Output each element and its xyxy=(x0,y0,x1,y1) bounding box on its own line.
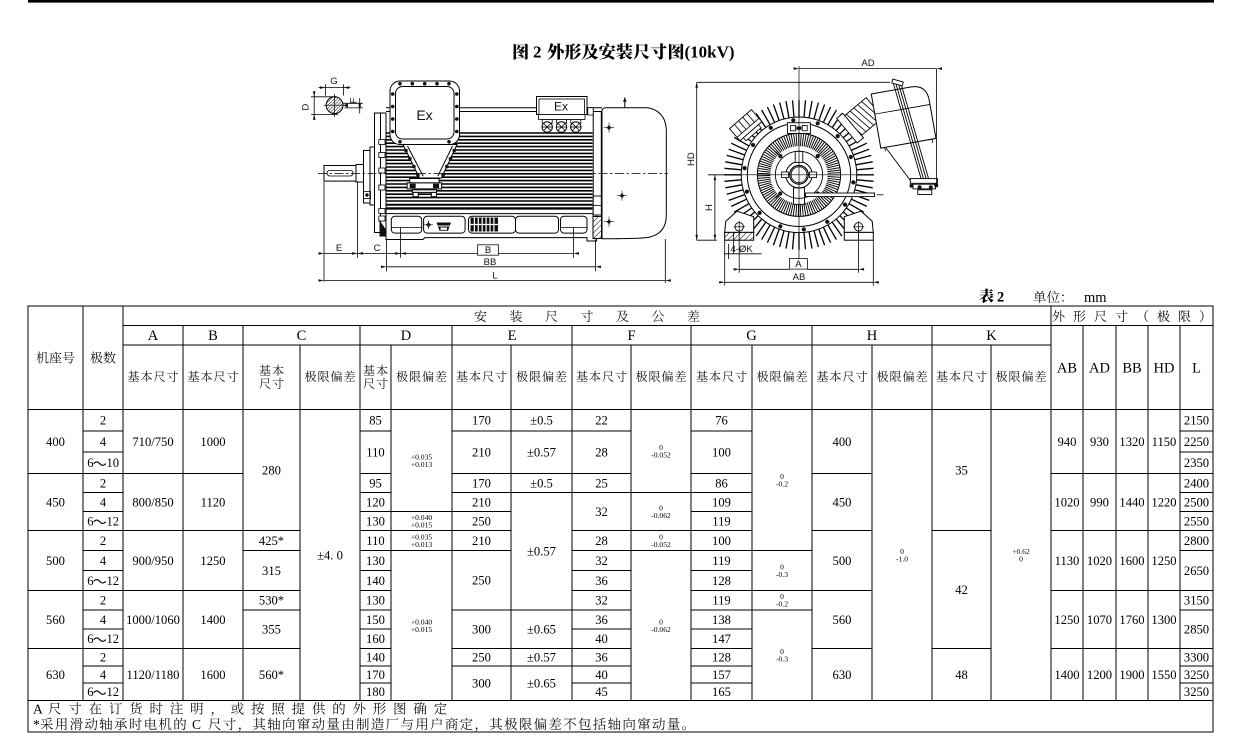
svg-text:AB: AB xyxy=(793,272,806,283)
svg-text:22: 22 xyxy=(595,414,608,428)
svg-text:1200: 1200 xyxy=(1087,668,1112,682)
svg-text:1220: 1220 xyxy=(1151,495,1176,509)
svg-text:990: 990 xyxy=(1090,495,1109,509)
svg-text:BB: BB xyxy=(1122,361,1141,377)
svg-text:128: 128 xyxy=(712,651,731,665)
svg-text:1120: 1120 xyxy=(201,495,226,509)
svg-text:Ex: Ex xyxy=(416,107,432,123)
svg-text:C: C xyxy=(297,328,307,344)
svg-text:76: 76 xyxy=(715,414,728,428)
svg-text:1000/1060: 1000/1060 xyxy=(126,613,180,627)
svg-text:12: 12 xyxy=(107,685,120,699)
svg-text:F: F xyxy=(348,98,359,104)
svg-text:2150: 2150 xyxy=(1184,414,1209,428)
svg-text:AD: AD xyxy=(861,58,874,69)
svg-text:147: 147 xyxy=(712,632,731,646)
svg-text:36: 36 xyxy=(595,613,608,627)
svg-text:±0.57: ±0.57 xyxy=(527,446,556,460)
svg-text:560: 560 xyxy=(833,613,852,627)
svg-text:170: 170 xyxy=(472,476,491,490)
svg-text:180: 180 xyxy=(366,685,385,699)
svg-text:32: 32 xyxy=(595,594,608,608)
svg-text:3250: 3250 xyxy=(1184,685,1209,699)
svg-text:1020: 1020 xyxy=(1087,554,1112,568)
svg-text:2650: 2650 xyxy=(1184,564,1209,578)
svg-text:1070: 1070 xyxy=(1087,613,1112,627)
svg-text:42: 42 xyxy=(955,583,968,597)
svg-text:*: * xyxy=(33,717,40,732)
svg-text:138: 138 xyxy=(712,613,731,627)
svg-text:140: 140 xyxy=(366,574,385,588)
svg-text:AB: AB xyxy=(1057,361,1077,377)
svg-text:210: 210 xyxy=(472,495,491,509)
svg-text:1400: 1400 xyxy=(200,613,225,627)
svg-text:560: 560 xyxy=(46,613,65,627)
svg-text:119: 119 xyxy=(712,594,730,608)
svg-text:36: 36 xyxy=(595,651,608,665)
svg-text:1020: 1020 xyxy=(1054,495,1079,509)
svg-text:2350: 2350 xyxy=(1184,456,1209,470)
svg-text:2: 2 xyxy=(100,476,106,490)
svg-text:A: A xyxy=(33,702,43,717)
svg-text:530*: 530* xyxy=(259,594,284,608)
svg-text:280: 280 xyxy=(262,463,281,477)
svg-text:1250: 1250 xyxy=(200,554,225,568)
svg-text:2800: 2800 xyxy=(1184,534,1209,548)
svg-text:-0.3: -0.3 xyxy=(776,655,788,664)
svg-text:2: 2 xyxy=(997,290,1004,306)
svg-text:2400: 2400 xyxy=(1184,476,1209,490)
svg-text:1760: 1760 xyxy=(1119,613,1144,627)
svg-text:900/950: 900/950 xyxy=(132,554,173,568)
svg-text:Ex: Ex xyxy=(554,100,568,114)
svg-text:(10kV): (10kV) xyxy=(685,43,735,62)
svg-text:±0.57: ±0.57 xyxy=(527,545,556,559)
svg-text:86: 86 xyxy=(715,476,728,490)
svg-text:1000: 1000 xyxy=(200,435,225,449)
svg-text:H: H xyxy=(867,328,878,344)
svg-text:450: 450 xyxy=(833,495,852,509)
svg-text:-0.062: -0.062 xyxy=(651,511,671,520)
svg-text:F: F xyxy=(627,328,635,344)
svg-text:E: E xyxy=(336,243,342,254)
svg-text:±4. 0: ±4. 0 xyxy=(317,548,343,562)
svg-text:10: 10 xyxy=(107,456,120,470)
svg-text:1250: 1250 xyxy=(1054,613,1079,627)
svg-text:1130: 1130 xyxy=(1055,554,1080,568)
svg-text:4: 4 xyxy=(100,495,107,509)
svg-text:-0.052: -0.052 xyxy=(651,540,671,549)
svg-text:35: 35 xyxy=(955,463,968,477)
svg-text:1320: 1320 xyxy=(1119,435,1144,449)
svg-text:+0.013: +0.013 xyxy=(411,540,433,549)
svg-text:4: 4 xyxy=(100,554,107,568)
svg-text:6: 6 xyxy=(87,514,93,528)
svg-text:28: 28 xyxy=(595,446,608,460)
svg-text:1600: 1600 xyxy=(200,668,225,682)
svg-text:-1.0: -1.0 xyxy=(896,554,908,563)
svg-text:28: 28 xyxy=(595,534,608,548)
svg-text:HD: HD xyxy=(1154,361,1175,377)
svg-text:100: 100 xyxy=(712,534,731,548)
svg-text:2250: 2250 xyxy=(1184,435,1209,449)
svg-text:425*: 425* xyxy=(259,534,284,548)
svg-text:+0.015: +0.015 xyxy=(411,520,433,529)
svg-text:140: 140 xyxy=(366,651,385,665)
svg-text:6: 6 xyxy=(87,456,93,470)
svg-text:3150: 3150 xyxy=(1184,594,1209,608)
svg-text:250: 250 xyxy=(472,574,491,588)
svg-text:119: 119 xyxy=(712,514,730,528)
svg-text:2: 2 xyxy=(100,414,106,428)
svg-text:0: 0 xyxy=(1019,554,1023,563)
svg-text:250: 250 xyxy=(472,651,491,665)
svg-text:HD: HD xyxy=(686,152,697,166)
svg-text:1600: 1600 xyxy=(1119,554,1144,568)
svg-text:1550: 1550 xyxy=(1151,668,1176,682)
svg-text:-0.052: -0.052 xyxy=(651,450,671,459)
svg-text:560*: 560* xyxy=(259,668,284,682)
svg-text:1440: 1440 xyxy=(1119,495,1144,509)
svg-text:1400: 1400 xyxy=(1054,668,1079,682)
svg-text:940: 940 xyxy=(1058,435,1077,449)
svg-text:+0.015: +0.015 xyxy=(411,625,433,634)
svg-text:85: 85 xyxy=(369,414,382,428)
svg-text:3300: 3300 xyxy=(1184,651,1209,665)
svg-text:6: 6 xyxy=(87,632,93,646)
svg-text:4-ØK: 4-ØK xyxy=(731,244,754,255)
svg-text:L: L xyxy=(1192,361,1201,377)
svg-text:1150: 1150 xyxy=(1152,435,1177,449)
svg-text:800/850: 800/850 xyxy=(132,495,173,509)
svg-text:160: 160 xyxy=(366,632,385,646)
svg-text:2: 2 xyxy=(100,534,106,548)
svg-text:G: G xyxy=(746,328,757,344)
svg-text:L: L xyxy=(492,271,497,282)
svg-text:G: G xyxy=(330,76,337,87)
svg-text:930: 930 xyxy=(1090,435,1109,449)
svg-text:3250: 3250 xyxy=(1184,668,1209,682)
svg-text:-0.062: -0.062 xyxy=(651,625,671,634)
svg-text:210: 210 xyxy=(472,534,491,548)
svg-text:250: 250 xyxy=(472,514,491,528)
svg-text:210: 210 xyxy=(472,446,491,460)
svg-text:D: D xyxy=(301,104,312,111)
svg-text:119: 119 xyxy=(712,554,730,568)
svg-text:4: 4 xyxy=(100,668,107,682)
svg-text:2850: 2850 xyxy=(1184,623,1209,637)
svg-text:±0.65: ±0.65 xyxy=(527,677,556,691)
svg-text:4: 4 xyxy=(100,613,107,627)
svg-text:K: K xyxy=(986,328,997,344)
svg-text:1120/1180: 1120/1180 xyxy=(127,668,180,682)
svg-text:+0.013: +0.013 xyxy=(411,460,433,469)
svg-text:110: 110 xyxy=(366,534,384,548)
svg-text:500: 500 xyxy=(46,554,65,568)
svg-text:630: 630 xyxy=(833,668,852,682)
svg-text:±0.5: ±0.5 xyxy=(530,476,553,490)
svg-text:36: 36 xyxy=(595,574,608,588)
svg-text:E: E xyxy=(508,328,517,344)
svg-text:157: 157 xyxy=(712,668,731,682)
svg-text:±0.57: ±0.57 xyxy=(527,651,556,665)
svg-text:1300: 1300 xyxy=(1151,613,1176,627)
svg-text:48: 48 xyxy=(955,668,968,682)
svg-text:6: 6 xyxy=(87,574,93,588)
svg-text:C: C xyxy=(192,717,201,732)
svg-text:2: 2 xyxy=(100,594,106,608)
svg-text:300: 300 xyxy=(472,623,491,637)
svg-text:450: 450 xyxy=(46,495,65,509)
svg-text:1250: 1250 xyxy=(1151,554,1176,568)
svg-text:120: 120 xyxy=(366,495,385,509)
svg-text:150: 150 xyxy=(366,613,385,627)
svg-text:130: 130 xyxy=(366,594,385,608)
svg-text:2500: 2500 xyxy=(1184,495,1209,509)
svg-text:32: 32 xyxy=(595,554,608,568)
svg-text:-0.2: -0.2 xyxy=(776,479,788,488)
svg-text:630: 630 xyxy=(46,668,65,682)
svg-text:400: 400 xyxy=(833,435,852,449)
svg-text:170: 170 xyxy=(366,668,385,682)
svg-text:400: 400 xyxy=(46,435,65,449)
svg-text:500: 500 xyxy=(833,554,852,568)
svg-text:2550: 2550 xyxy=(1184,514,1209,528)
svg-text:A: A xyxy=(795,259,802,270)
svg-text:40: 40 xyxy=(595,668,608,682)
svg-text:710/750: 710/750 xyxy=(132,435,173,449)
svg-text:95: 95 xyxy=(369,476,382,490)
svg-text:2: 2 xyxy=(100,651,106,665)
svg-text:315: 315 xyxy=(262,564,281,578)
svg-text:-0.3: -0.3 xyxy=(776,570,788,579)
svg-text:130: 130 xyxy=(366,554,385,568)
svg-text:A: A xyxy=(148,328,159,344)
svg-text:4: 4 xyxy=(100,435,107,449)
svg-text:B: B xyxy=(208,328,218,344)
svg-text:H: H xyxy=(704,204,715,211)
svg-text:B: B xyxy=(485,245,491,256)
svg-text:12: 12 xyxy=(107,514,120,528)
svg-text:AD: AD xyxy=(1089,361,1110,377)
svg-text:±0.5: ±0.5 xyxy=(530,414,553,428)
svg-text:355: 355 xyxy=(262,623,281,637)
svg-text:45: 45 xyxy=(595,685,608,699)
svg-text:-0.2: -0.2 xyxy=(776,600,788,609)
svg-text:109: 109 xyxy=(712,495,731,509)
svg-text:±0.65: ±0.65 xyxy=(527,623,556,637)
svg-text:1900: 1900 xyxy=(1119,668,1144,682)
svg-text:300: 300 xyxy=(472,677,491,691)
svg-text:D: D xyxy=(401,328,411,344)
svg-text:25: 25 xyxy=(595,476,608,490)
svg-text:40: 40 xyxy=(595,632,608,646)
svg-text:6: 6 xyxy=(87,685,93,699)
svg-text:12: 12 xyxy=(107,632,120,646)
svg-text:2: 2 xyxy=(533,43,542,62)
svg-text:110: 110 xyxy=(366,446,384,460)
svg-text:BB: BB xyxy=(484,257,497,268)
svg-text:170: 170 xyxy=(472,414,491,428)
svg-text:128: 128 xyxy=(712,574,731,588)
svg-text:100: 100 xyxy=(712,446,731,460)
svg-text:12: 12 xyxy=(107,574,120,588)
svg-text:130: 130 xyxy=(366,514,385,528)
svg-text:165: 165 xyxy=(712,685,731,699)
svg-text:C: C xyxy=(374,243,381,254)
svg-text:32: 32 xyxy=(595,505,608,519)
svg-text:mm: mm xyxy=(1084,290,1107,306)
